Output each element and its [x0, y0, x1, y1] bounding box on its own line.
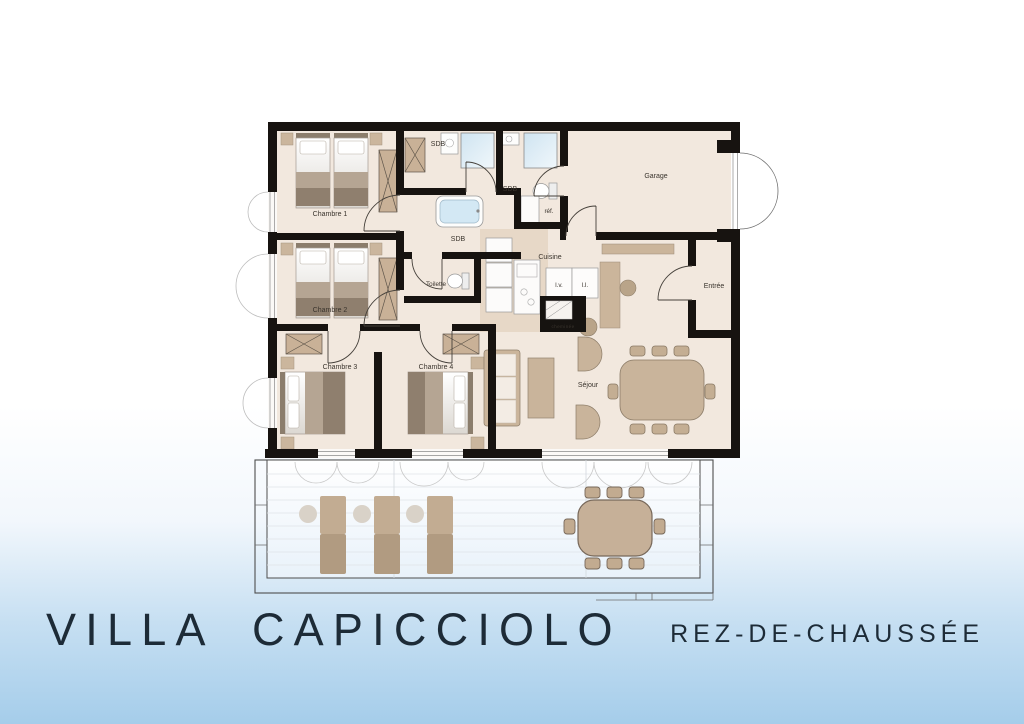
sejour-label: Séjour: [578, 382, 599, 389]
toilette-label: Toilette: [426, 281, 446, 288]
sideboard: [602, 244, 674, 254]
dining-table: [620, 360, 704, 420]
stool: [620, 280, 636, 296]
terrace: [255, 460, 713, 600]
lounger: [427, 496, 453, 574]
side-table: [353, 505, 371, 523]
sdb-middle-label: SDB: [503, 186, 518, 193]
twin-bed: [334, 133, 368, 208]
double-bed: [280, 372, 345, 434]
wardrobe: [286, 334, 322, 354]
sun-loungers: [299, 496, 453, 574]
garage-opening: [733, 153, 738, 229]
nightstand: [281, 243, 293, 255]
wardrobe: [379, 150, 397, 212]
nightstand: [471, 357, 484, 369]
garage-label: Garage: [644, 173, 667, 180]
villa-title: VILLA CAPICCIOLO: [46, 604, 622, 656]
dishwasher-label: l.v.: [555, 282, 563, 289]
coffee-table: [528, 358, 554, 418]
wardrobe: [443, 334, 479, 354]
chambre-1-label: Chambre 1: [313, 211, 348, 218]
sdb-bath-label: SDB: [451, 236, 466, 243]
nightstand: [281, 437, 294, 449]
fireplace-label: cheminée: [551, 324, 574, 329]
nightstand: [370, 133, 382, 145]
floor-subtitle: REZ-DE-CHAUSSÉE: [670, 620, 984, 649]
nightstand: [281, 357, 294, 369]
refrigerator-label: réf.: [544, 208, 553, 215]
refrigerator-unit: [521, 196, 539, 224]
chambre-3-label: Chambre 3: [323, 364, 358, 371]
shower: [524, 133, 557, 168]
sdb-top-label: SDB: [431, 141, 446, 148]
side-table: [406, 505, 424, 523]
twin-bed: [296, 133, 330, 208]
chambre-2-label: Chambre 2: [313, 307, 348, 314]
wardrobe: [405, 138, 425, 172]
cuisine-label: Cuisine: [538, 254, 561, 261]
kitchen-island: [514, 260, 540, 314]
lounger: [374, 496, 400, 574]
bathtub: [436, 196, 483, 227]
toilet: [448, 273, 470, 289]
nightstand: [471, 437, 484, 449]
fireplace: cheminée: [540, 296, 586, 332]
nightstand: [281, 133, 293, 145]
double-bed: [408, 372, 473, 434]
lounger: [320, 496, 346, 574]
outdoor-table: [578, 500, 652, 556]
entree-label: Entrée: [704, 283, 725, 290]
washer-label: l.l.: [582, 282, 589, 289]
wardrobe: [379, 258, 397, 320]
floor-plan-poster: cheminée Chambre 1 Chambre 2 Chambre 3 C…: [0, 0, 1024, 724]
nightstand: [370, 243, 382, 255]
kitchen-tall-units: [486, 238, 512, 312]
side-table: [299, 505, 317, 523]
bar-counter: [600, 262, 620, 328]
chambre-4-label: Chambre 4: [419, 364, 454, 371]
